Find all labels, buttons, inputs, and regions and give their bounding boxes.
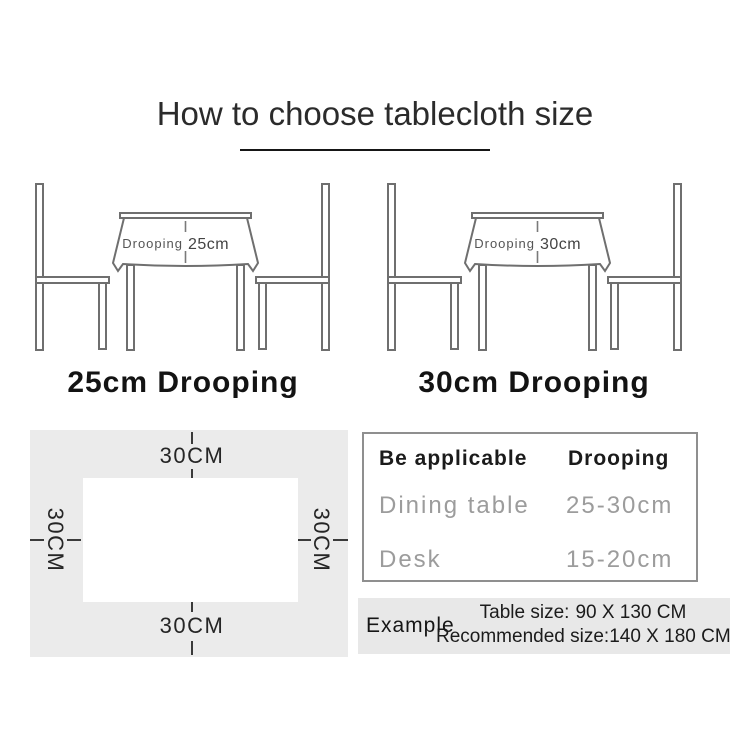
tick-mark: [191, 602, 193, 612]
table-row: Dining table 25-30cm: [364, 492, 696, 520]
dining-set-30cm: Drooping 30cm: [388, 184, 681, 350]
tick-mark: [333, 539, 348, 541]
example-strip: Example Table size:90 X 130 CM Recommend…: [358, 598, 730, 654]
table-with-cloth-icon: [113, 213, 258, 350]
tick-mark: [30, 539, 44, 541]
example-lines: Table size:90 X 130 CM Recommended size:…: [436, 598, 730, 654]
diagram-right-label: 30CM: [309, 495, 333, 585]
header-be-applicable: Be applicable: [379, 447, 527, 471]
table-size-value: 90 X 130 CM: [575, 602, 686, 623]
table-row: Desk 15-20cm: [364, 546, 696, 574]
tick-mark: [67, 539, 81, 541]
tick-mark: [191, 641, 193, 655]
drooping-word-30: Drooping: [474, 236, 535, 251]
table-size-label: Table size:: [480, 602, 570, 623]
spec-table: Be applicable Drooping Dining table 25-3…: [362, 432, 698, 582]
recommended-size-line: Recommended size:140 X 180 CM: [436, 626, 730, 648]
diagram-bottom-label: 30CM: [142, 613, 242, 639]
chair-left-icon: [36, 184, 109, 350]
chair-left-icon: [388, 184, 461, 350]
drooping-word-25: Drooping: [122, 236, 183, 251]
tablecloth-size-infographic: How to choose tablecloth size Dro: [0, 0, 750, 750]
chair-right-icon: [256, 184, 329, 350]
recommended-size-value: 140 X 180 CM: [609, 626, 730, 647]
drooping-value-30: 30cm: [540, 236, 581, 253]
row-desk-value: 15-20cm: [566, 546, 673, 574]
drooping-value-25: 25cm: [188, 236, 229, 253]
chair-right-icon: [608, 184, 681, 350]
dining-set-25cm: Drooping 25cm: [36, 184, 329, 350]
table-top-rect: [83, 478, 298, 602]
diagram-top-label: 30CM: [142, 443, 242, 469]
caption-30cm-drooping: 30cm Drooping: [378, 366, 690, 400]
tick-mark: [191, 469, 193, 478]
tablecloth-size-diagram: 30CM 30CM 30CM 30CM: [30, 430, 348, 657]
spec-table-header: Be applicable Drooping: [364, 447, 696, 475]
table-size-line: Table size:90 X 130 CM: [436, 602, 730, 624]
row-desk-label: Desk: [379, 546, 442, 574]
dining-set-illustrations: Drooping 25cm Drooping 30cm: [0, 0, 750, 420]
table-with-cloth-icon: [465, 213, 610, 350]
diagram-left-label: 30CM: [43, 495, 67, 585]
header-drooping: Drooping: [568, 447, 669, 471]
row-dining-table-value: 25-30cm: [566, 492, 673, 520]
caption-25cm-drooping: 25cm Drooping: [27, 366, 339, 400]
recommended-size-label: Recommended size:: [436, 626, 609, 647]
row-dining-table-label: Dining table: [379, 492, 530, 520]
